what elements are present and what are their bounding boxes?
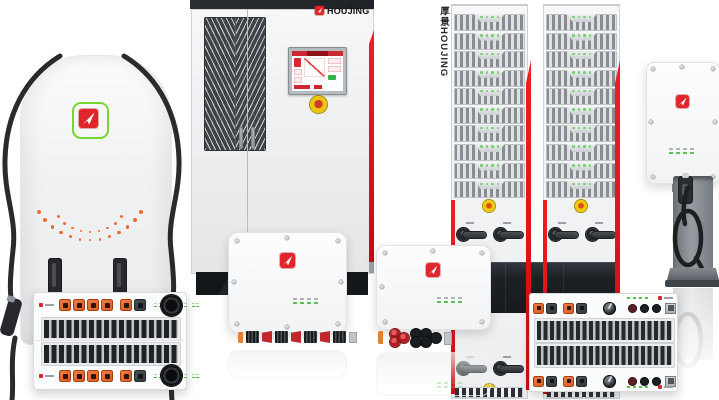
connector-row <box>533 295 674 316</box>
signal-connector <box>576 303 587 314</box>
mini-brand-badge <box>658 296 673 300</box>
round-connector <box>628 377 637 386</box>
data-port <box>665 303 676 314</box>
mini-brand-badge <box>658 385 673 389</box>
output-connector <box>563 303 574 314</box>
vent-grille <box>534 318 675 343</box>
output-connector <box>563 376 574 387</box>
round-connector <box>640 304 649 313</box>
vent-grille <box>534 343 675 368</box>
signal-connector <box>546 303 557 314</box>
output-connector <box>533 303 544 314</box>
rotary-knob <box>603 302 616 315</box>
rotary-knob <box>603 375 616 388</box>
signal-connector <box>546 376 557 387</box>
power-module-unit-right-group <box>0 0 719 400</box>
round-connector <box>652 304 661 313</box>
round-connector <box>628 304 637 313</box>
rack-power-module-wide <box>529 293 678 392</box>
signal-connector <box>576 376 587 387</box>
product-collage: HOUJING 厚景HOUJING <box>0 0 719 400</box>
connector-row <box>533 368 674 389</box>
status-leds <box>627 386 648 388</box>
output-connector <box>533 376 544 387</box>
status-leds <box>627 297 648 299</box>
round-connector <box>640 377 649 386</box>
